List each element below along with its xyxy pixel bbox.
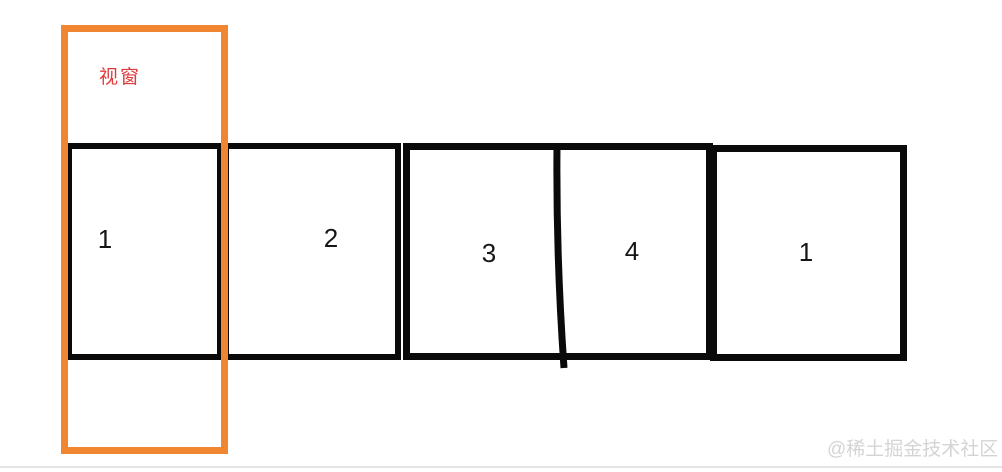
carousel-viewport-diagram: 1 2 3 4 1 视窗 @稀土掘金技术社区 — [0, 0, 1002, 472]
slide-box-3-4 — [403, 143, 713, 360]
page-bottom-rule — [0, 466, 1002, 468]
slide-box-2 — [223, 143, 401, 360]
slide-label-2: 2 — [324, 225, 338, 251]
slide-label-5: 1 — [799, 239, 813, 265]
viewport-outline — [61, 25, 228, 454]
slide-label-3: 3 — [482, 240, 496, 266]
slide-label-4: 4 — [625, 238, 639, 264]
watermark: @稀土掘金技术社区 — [827, 434, 998, 461]
viewport-label: 视窗 — [99, 62, 141, 89]
